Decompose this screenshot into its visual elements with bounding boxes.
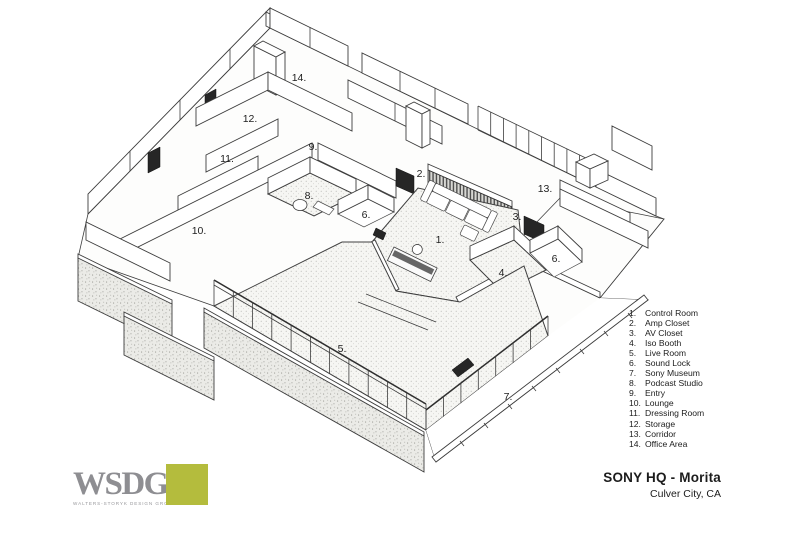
legend-item: 9.Entry bbox=[629, 388, 779, 398]
legend-item-label: Dressing Room bbox=[645, 408, 779, 418]
floor-plan-drawing: 1.2.3.4.5.6.6.7.8.9.10.11.12.13.14. bbox=[0, 0, 800, 533]
legend-item-number: 10. bbox=[629, 398, 645, 408]
legend-item: 6.Sound Lock bbox=[629, 358, 779, 368]
room-label-live-room: 5. bbox=[338, 343, 347, 355]
legend-item-number: 7. bbox=[629, 368, 645, 378]
legend-item-number: 8. bbox=[629, 378, 645, 388]
legend-item: 10.Lounge bbox=[629, 398, 779, 408]
room-label-dressing-room: 11. bbox=[220, 153, 234, 165]
room-label-av-closet: 3. bbox=[513, 211, 522, 223]
legend-item: 1.Control Room bbox=[629, 308, 779, 318]
legend-item-label: Live Room bbox=[645, 348, 779, 358]
legend-item-number: 9. bbox=[629, 388, 645, 398]
legend-item-label: Corridor bbox=[645, 429, 779, 439]
project-location: Culver City, CA bbox=[603, 488, 721, 500]
presentation-sheet: 1.2.3.4.5.6.6.7.8.9.10.11.12.13.14. 1.Co… bbox=[0, 0, 800, 533]
wsdg-logo: WSDG” WALTERS-STORYK DESIGN GROUP bbox=[73, 462, 208, 506]
legend-item: 5.Live Room bbox=[629, 348, 779, 358]
legend-item-number: 1. bbox=[629, 308, 645, 318]
legend-item: 11.Dressing Room bbox=[629, 408, 779, 418]
legend-item-label: Office Area bbox=[645, 439, 779, 449]
project-title: SONY HQ - Morita bbox=[603, 470, 721, 485]
legend-item: 3.AV Closet bbox=[629, 328, 779, 338]
logo-tagline: WALTERS-STORYK DESIGN GROUP bbox=[73, 501, 161, 506]
legend-item: 14.Office Area bbox=[629, 439, 779, 449]
legend-item: 2.Amp Closet bbox=[629, 318, 779, 328]
logo-accent-square bbox=[166, 464, 208, 505]
legend-item: 7.Sony Museum bbox=[629, 368, 779, 378]
legend-item-number: 2. bbox=[629, 318, 645, 328]
logo-wordmark: WSDG” bbox=[73, 462, 161, 499]
legend-item-number: 14. bbox=[629, 439, 645, 449]
legend-item-label: Sony Museum bbox=[645, 368, 779, 378]
legend-item-number: 13. bbox=[629, 429, 645, 439]
legend-item-label: Amp Closet bbox=[645, 318, 779, 328]
legend-item-label: Iso Booth bbox=[645, 338, 779, 348]
legend-item-label: Entry bbox=[645, 388, 779, 398]
room-label-storage: 12. bbox=[243, 113, 258, 125]
legend-item: 13.Corridor bbox=[629, 429, 779, 439]
logo-text: WSDG” WALTERS-STORYK DESIGN GROUP bbox=[73, 462, 161, 506]
room-label-sound-lock: 6. bbox=[362, 209, 371, 221]
legend-item-number: 4. bbox=[629, 338, 645, 348]
legend-item: 4.Iso Booth bbox=[629, 338, 779, 348]
room-label-amp-closet: 2. bbox=[417, 168, 426, 180]
legend-item-label: Control Room bbox=[645, 308, 779, 318]
legend-item-label: AV Closet bbox=[645, 328, 779, 338]
corridor-column bbox=[406, 102, 430, 148]
legend-item-number: 6. bbox=[629, 358, 645, 368]
roof-fin bbox=[266, 12, 270, 28]
room-label-office-area: 14. bbox=[292, 72, 307, 84]
room-legend: 1.Control Room2.Amp Closet3.AV Closet4.I… bbox=[629, 308, 779, 449]
logo-wordmark-letters: WSDG bbox=[73, 466, 168, 502]
legend-item-label: Storage bbox=[645, 419, 779, 429]
legend-item-number: 3. bbox=[629, 328, 645, 338]
legend-item: 8.Podcast Studio bbox=[629, 378, 779, 388]
legend-item-label: Lounge bbox=[645, 398, 779, 408]
room-label-sony-museum: 7. bbox=[504, 391, 513, 403]
room-label-lounge: 10. bbox=[192, 225, 207, 237]
room-label-podcast-studio: 8. bbox=[305, 190, 314, 202]
legend-item-number: 12. bbox=[629, 419, 645, 429]
legend-item-number: 11. bbox=[629, 408, 645, 418]
room-label-control-room: 1. bbox=[436, 234, 445, 246]
tall-wall-slab bbox=[612, 126, 652, 170]
room-label-sound-lock: 6. bbox=[552, 253, 561, 265]
legend-item: 12.Storage bbox=[629, 419, 779, 429]
room-label-corridor: 13. bbox=[538, 183, 553, 195]
legend-item-label: Podcast Studio bbox=[645, 378, 779, 388]
room-label-iso-booth: 4. bbox=[499, 267, 508, 279]
legend-item-number: 5. bbox=[629, 348, 645, 358]
room-label-entry: 9. bbox=[309, 141, 318, 153]
legend-item-label: Sound Lock bbox=[645, 358, 779, 368]
title-block: SONY HQ - Morita Culver City, CA bbox=[603, 470, 721, 500]
